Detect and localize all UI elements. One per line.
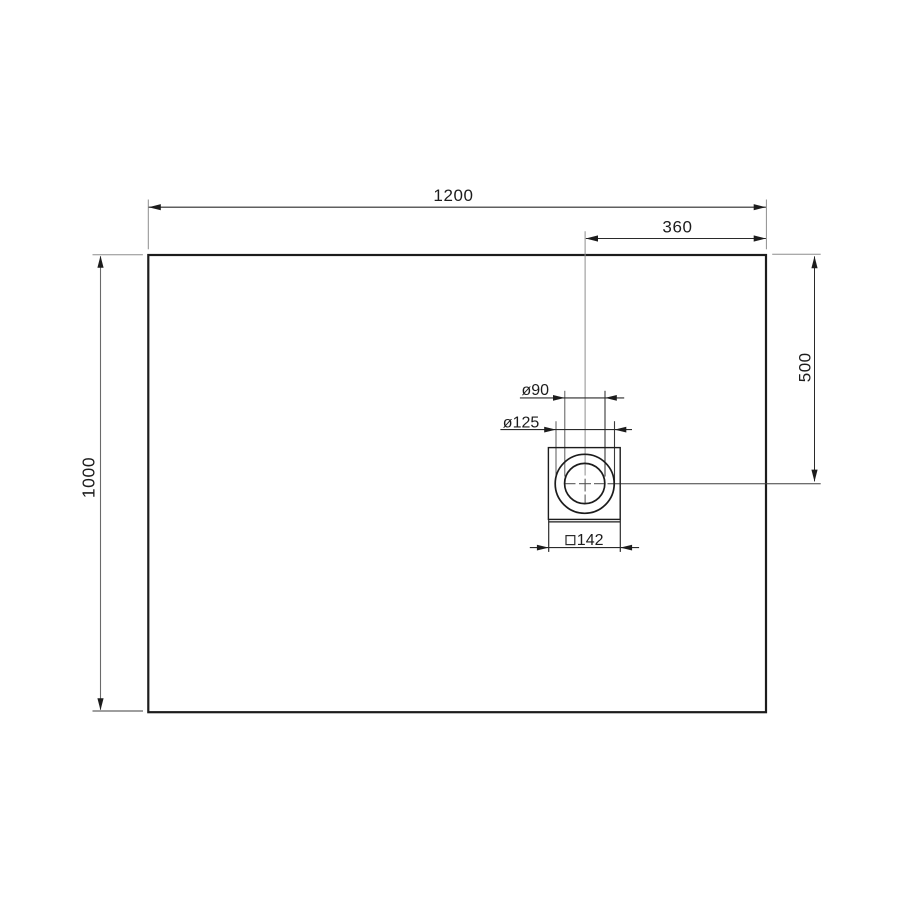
svg-text:ø125: ø125 [503,414,540,431]
svg-text:1000: 1000 [79,457,99,498]
svg-text:500: 500 [796,352,815,382]
svg-text:1200: 1200 [433,186,473,205]
svg-text:142: 142 [577,532,604,549]
svg-text:ø90: ø90 [522,382,550,399]
svg-text:360: 360 [662,218,692,237]
